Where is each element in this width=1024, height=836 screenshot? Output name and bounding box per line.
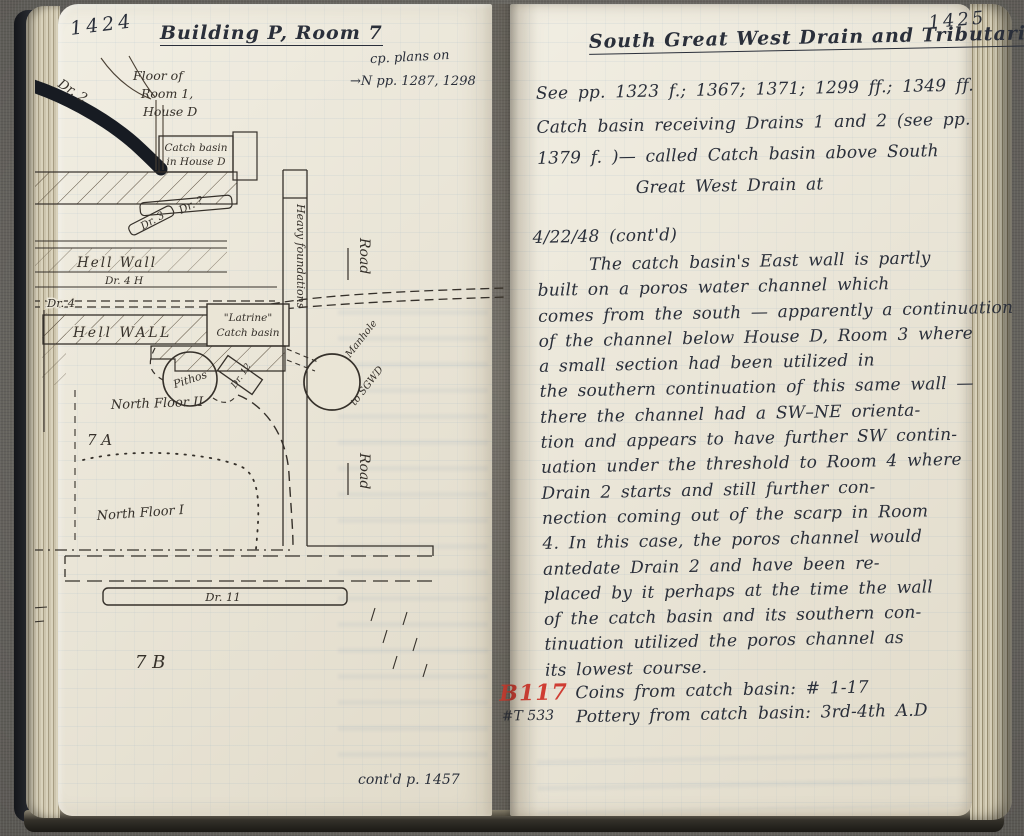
right-page-content: 1425 South Great West Drain and Tributar… — [502, 0, 980, 820]
right-page: 1425 South Great West Drain and Tributar… — [510, 4, 972, 816]
ink-bleed-through — [536, 736, 967, 814]
floor-label-3: House D — [142, 104, 197, 119]
pithos-dashed-link — [213, 396, 236, 402]
right-page-title: South Great West Drain and Tributaries — [589, 22, 1024, 53]
intro-line-3: Great West Drain at — [636, 174, 824, 198]
latrine-label-1: "Latrine" — [224, 312, 272, 324]
drain-4-label: Dr. 4 — [46, 296, 75, 310]
area-7b-label: 7 B — [135, 652, 165, 673]
road-label-2: Road — [356, 452, 372, 489]
north-floor-i-label: North Floor I — [95, 503, 185, 524]
latrine-catch-basin-box — [207, 304, 289, 346]
hell-wall-upper-label: Hell Wall — [76, 255, 157, 271]
intro-line-1: Catch basin receiving Drains 1 and 2 (se… — [536, 110, 970, 138]
find-ref-pottery: #T 533 — [502, 708, 555, 725]
see-references: See pp. 1323 f.; 1367; 1371; 1299 ff.; 1… — [536, 75, 974, 103]
bottom-band — [65, 546, 433, 581]
catch-basin-house-d-label-2: in House D — [166, 156, 226, 168]
catch-basin-house-d-label-1: Catch basin — [165, 142, 228, 154]
scatter-dashes — [35, 607, 427, 677]
left-hatch-strip — [42, 313, 66, 385]
manhole-label-1: Manhole — [343, 318, 380, 360]
latrine-label-2: Catch basin — [217, 327, 280, 339]
floor-ii-dashed-boundary — [238, 395, 293, 546]
body-text: The catch basin's East wall is partly bu… — [537, 247, 1020, 686]
area-7a-label: 7 A — [87, 431, 112, 449]
drain-11-label: Dr. 11 — [204, 590, 240, 604]
find-ref-coins: B117 — [499, 679, 568, 706]
hell-wall-lower-label: Hell WALL — [72, 325, 172, 341]
find-pottery-text: Pottery from catch basin: 3rd-4th A.D — [576, 700, 928, 727]
right-page-title-text: South Great West Drain and Tributaries — [589, 22, 1024, 55]
hatched-block — [151, 346, 285, 371]
floor-label-2: Room 1, — [140, 86, 193, 101]
site-plan-diagram: Dr. 2 Floor of Room 1, House D Catch bas… — [35, 8, 505, 820]
road-label-1: Road — [356, 237, 372, 274]
open-notebook: 1424 Building P, Room 7 cp. plans on →N … — [20, 4, 1012, 828]
floor-i-dotted-boundary — [83, 453, 258, 549]
drain-3-label: Dr. 3 — [138, 209, 167, 233]
drain-4h-label: Dr. 4 H — [104, 275, 144, 287]
floor-label-1: Floor of — [132, 68, 185, 83]
heavy-foundations-label: Heavy foundations — [294, 203, 307, 309]
north-floor-ii-label: North Floor II — [110, 395, 205, 413]
notebook-scan: { "left_page": { "page_number": "1424", … — [0, 0, 1024, 836]
date-line: 4/22/48 (cont'd) — [532, 225, 677, 248]
intro-line-2: 1379 f. )— called Catch basin above Sout… — [537, 141, 939, 169]
wall-band-hatched — [35, 172, 237, 204]
find-coins-text: Coins from catch basin: # 1-17 — [575, 678, 869, 704]
